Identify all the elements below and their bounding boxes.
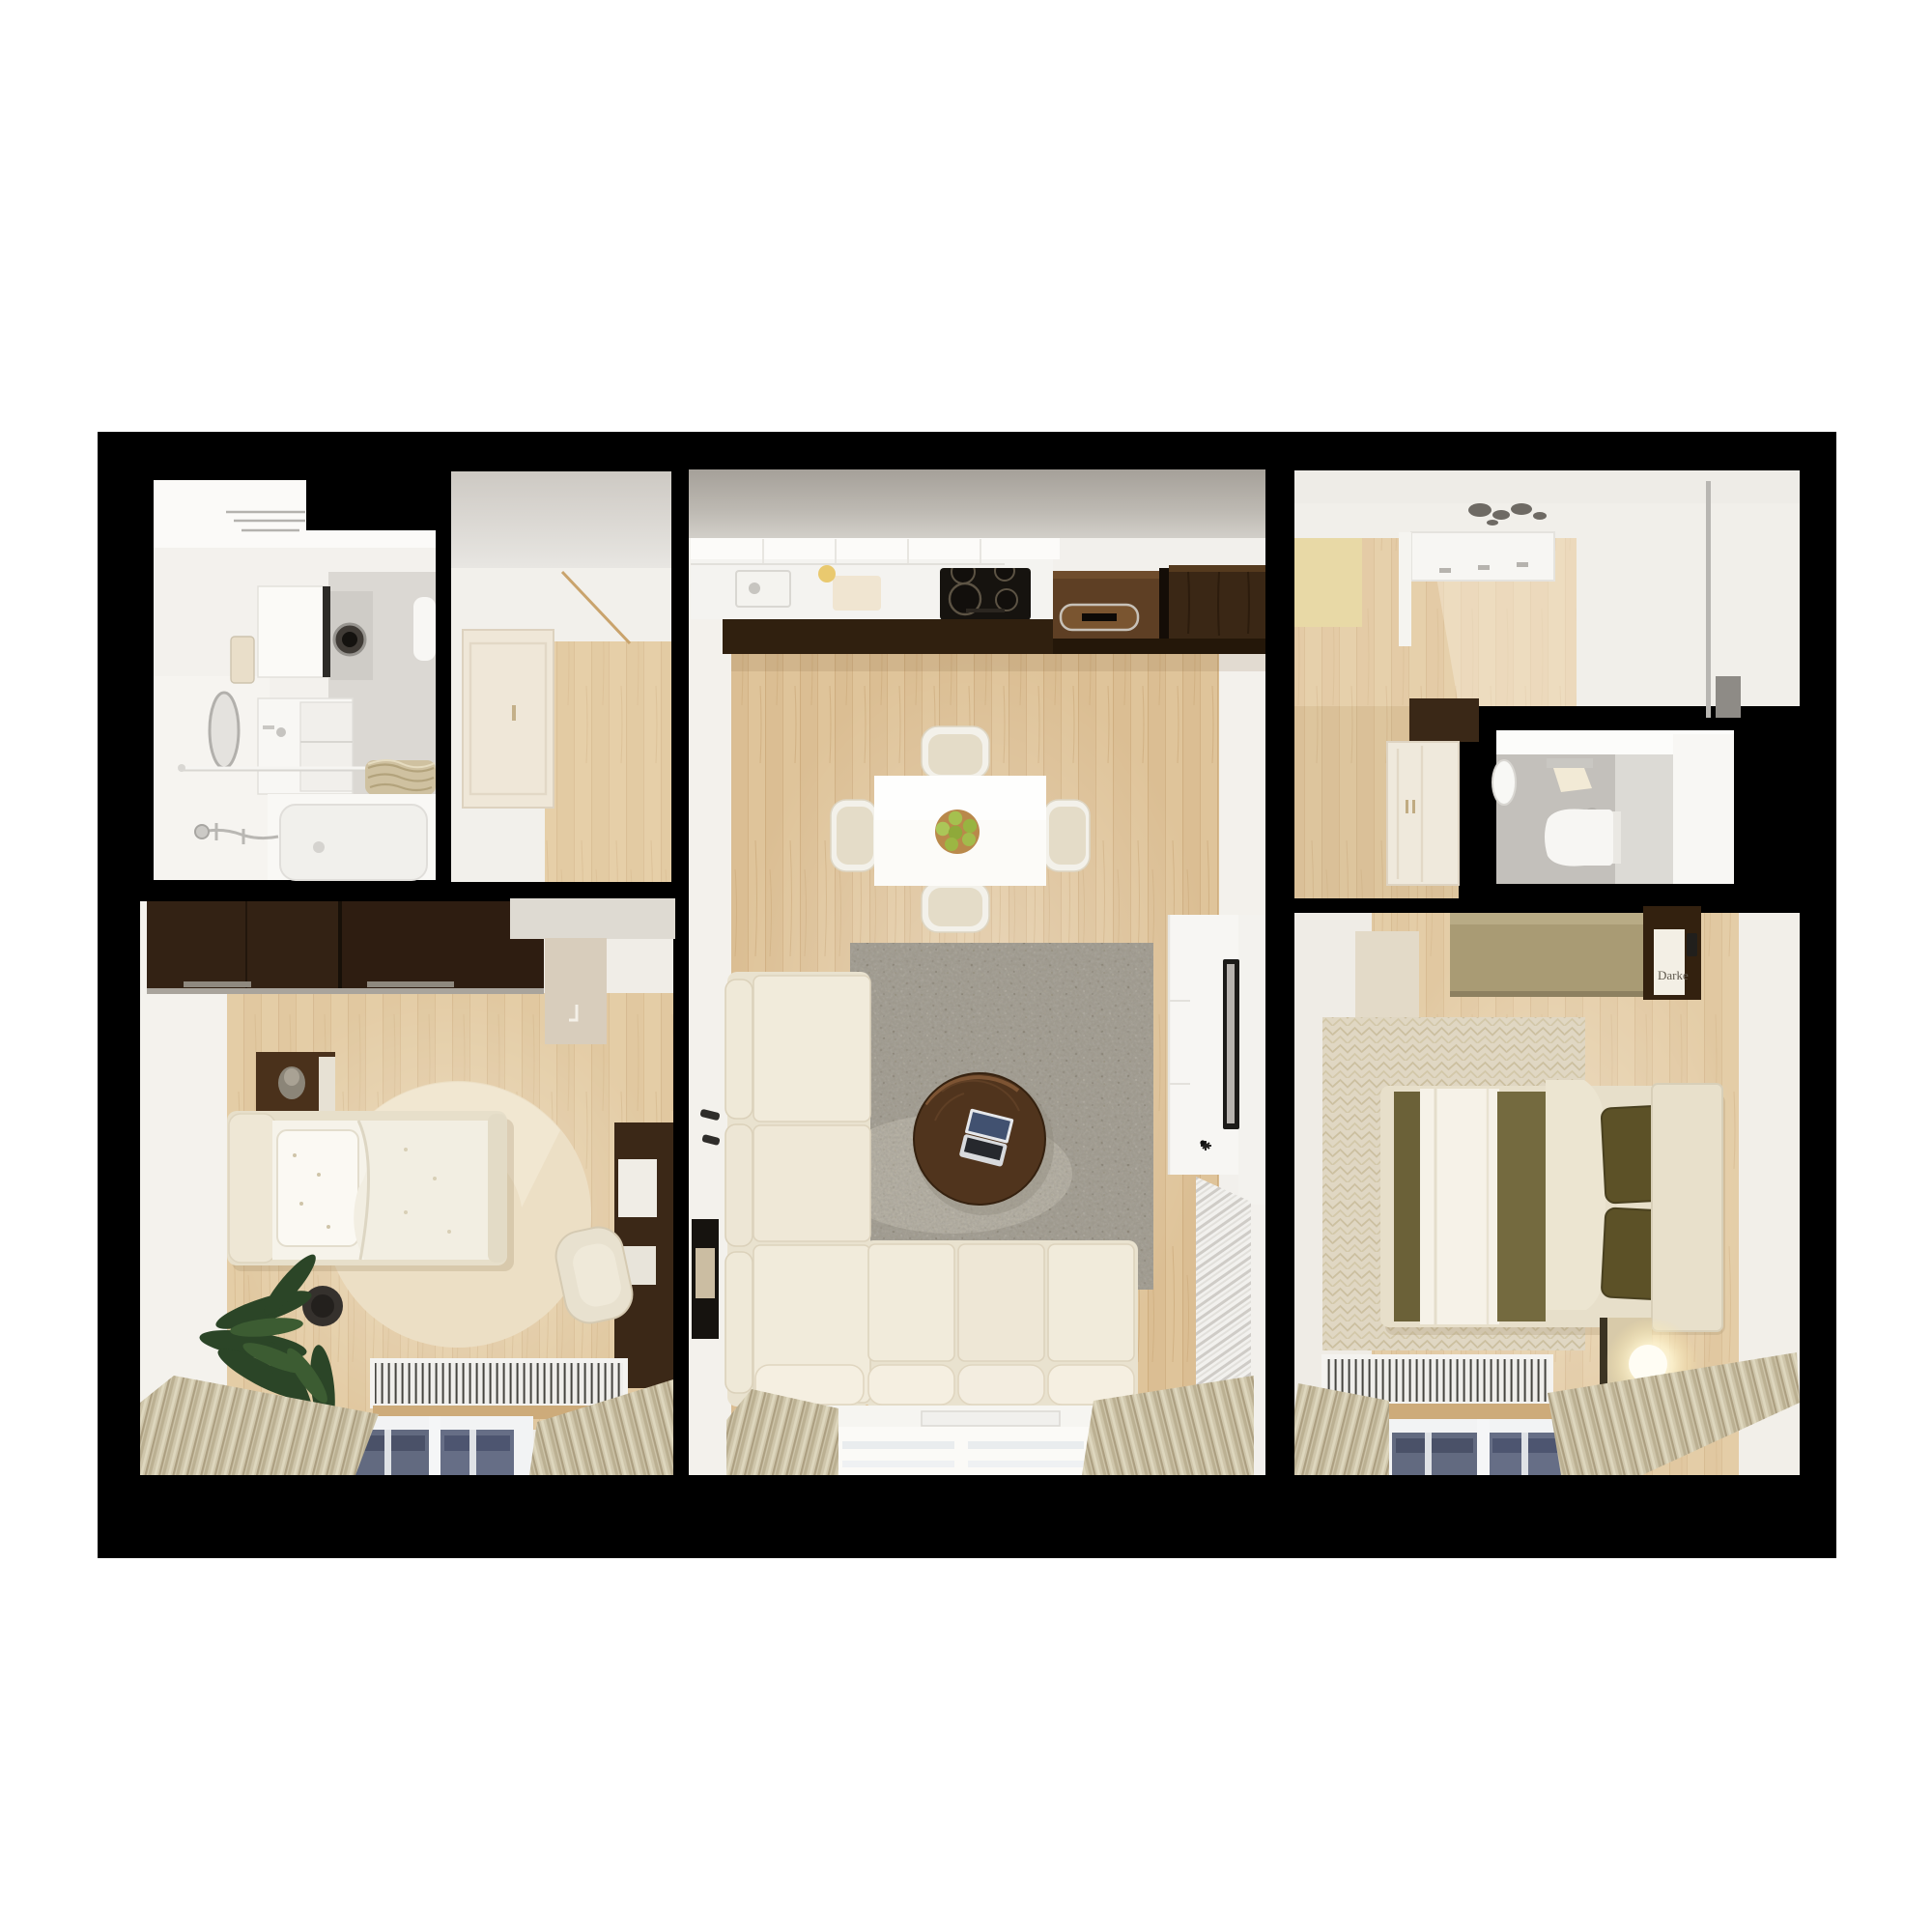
svg-text:Darke: Darke	[1658, 968, 1689, 982]
